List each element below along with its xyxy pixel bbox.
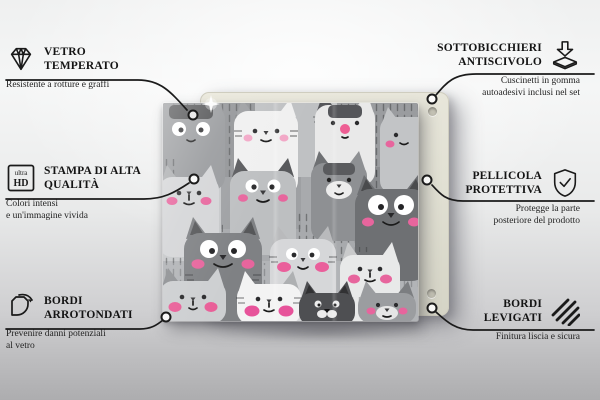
callout-title: STAMPA DI ALTAQUALITÀ (44, 164, 141, 193)
callout-title: PELLICOLAPROTETTIVA (465, 169, 542, 198)
callout-title: VETROTEMPERATO (44, 45, 119, 74)
callout-subtitle: Cuscinetti in gommaautoadesivi inclusi n… (408, 76, 580, 99)
callout-subtitle: Finitura liscia e sicura (408, 332, 580, 344)
diamond-icon (6, 44, 36, 74)
mounting-hole (428, 107, 437, 116)
glass-board (163, 103, 418, 321)
callout-bordi-arrotondati: BORDIARROTONDATI Prevenire danni potenzi… (6, 293, 166, 352)
callout-stampa-di-alta-qualita: ultra HD STAMPA DI ALTAQUALITÀ Colori in… (6, 163, 166, 222)
callout-title: BORDILEVIGATI (484, 297, 542, 326)
callout-subtitle: Protegge la parteposteriore del prodotto (408, 204, 580, 227)
rounded-corner-icon (6, 293, 36, 323)
shield-check-icon (550, 168, 580, 198)
callout-title: BORDIARROTONDATI (44, 294, 133, 323)
callout-subtitle: Resistente a rotture e graffi (6, 80, 166, 92)
callout-title: SOTTOBICCHIERIANTISCIVOLO (437, 41, 542, 70)
anti-slip-pad-icon (550, 40, 580, 70)
callout-subtitle: Prevenire danni potenzialial vetro (6, 329, 166, 352)
callout-sottobicchieri-antiscivolo: SOTTOBICCHIERIANTISCIVOLO Cuscinetti in … (408, 40, 580, 99)
callout-bordi-levigati: BORDILEVIGATI Finitura liscia e sicura (408, 296, 580, 344)
cat-pattern-illustration (163, 103, 418, 321)
product-infographic: VETROTEMPERATO Resistente a rotture e gr… (0, 0, 600, 400)
callout-pellicola-protettiva: PELLICOLAPROTETTIVA Protegge la partepos… (408, 168, 580, 227)
callout-vetro-temperato: VETROTEMPERATO Resistente a rotture e gr… (6, 44, 166, 92)
ultra-hd-icon: ultra HD (6, 163, 36, 193)
smooth-edge-hatch-icon (550, 296, 580, 326)
svg-text:HD: HD (14, 178, 29, 189)
svg-text:ultra: ultra (15, 169, 29, 177)
callout-subtitle: Colori intensie un'immagine vivida (6, 199, 166, 222)
